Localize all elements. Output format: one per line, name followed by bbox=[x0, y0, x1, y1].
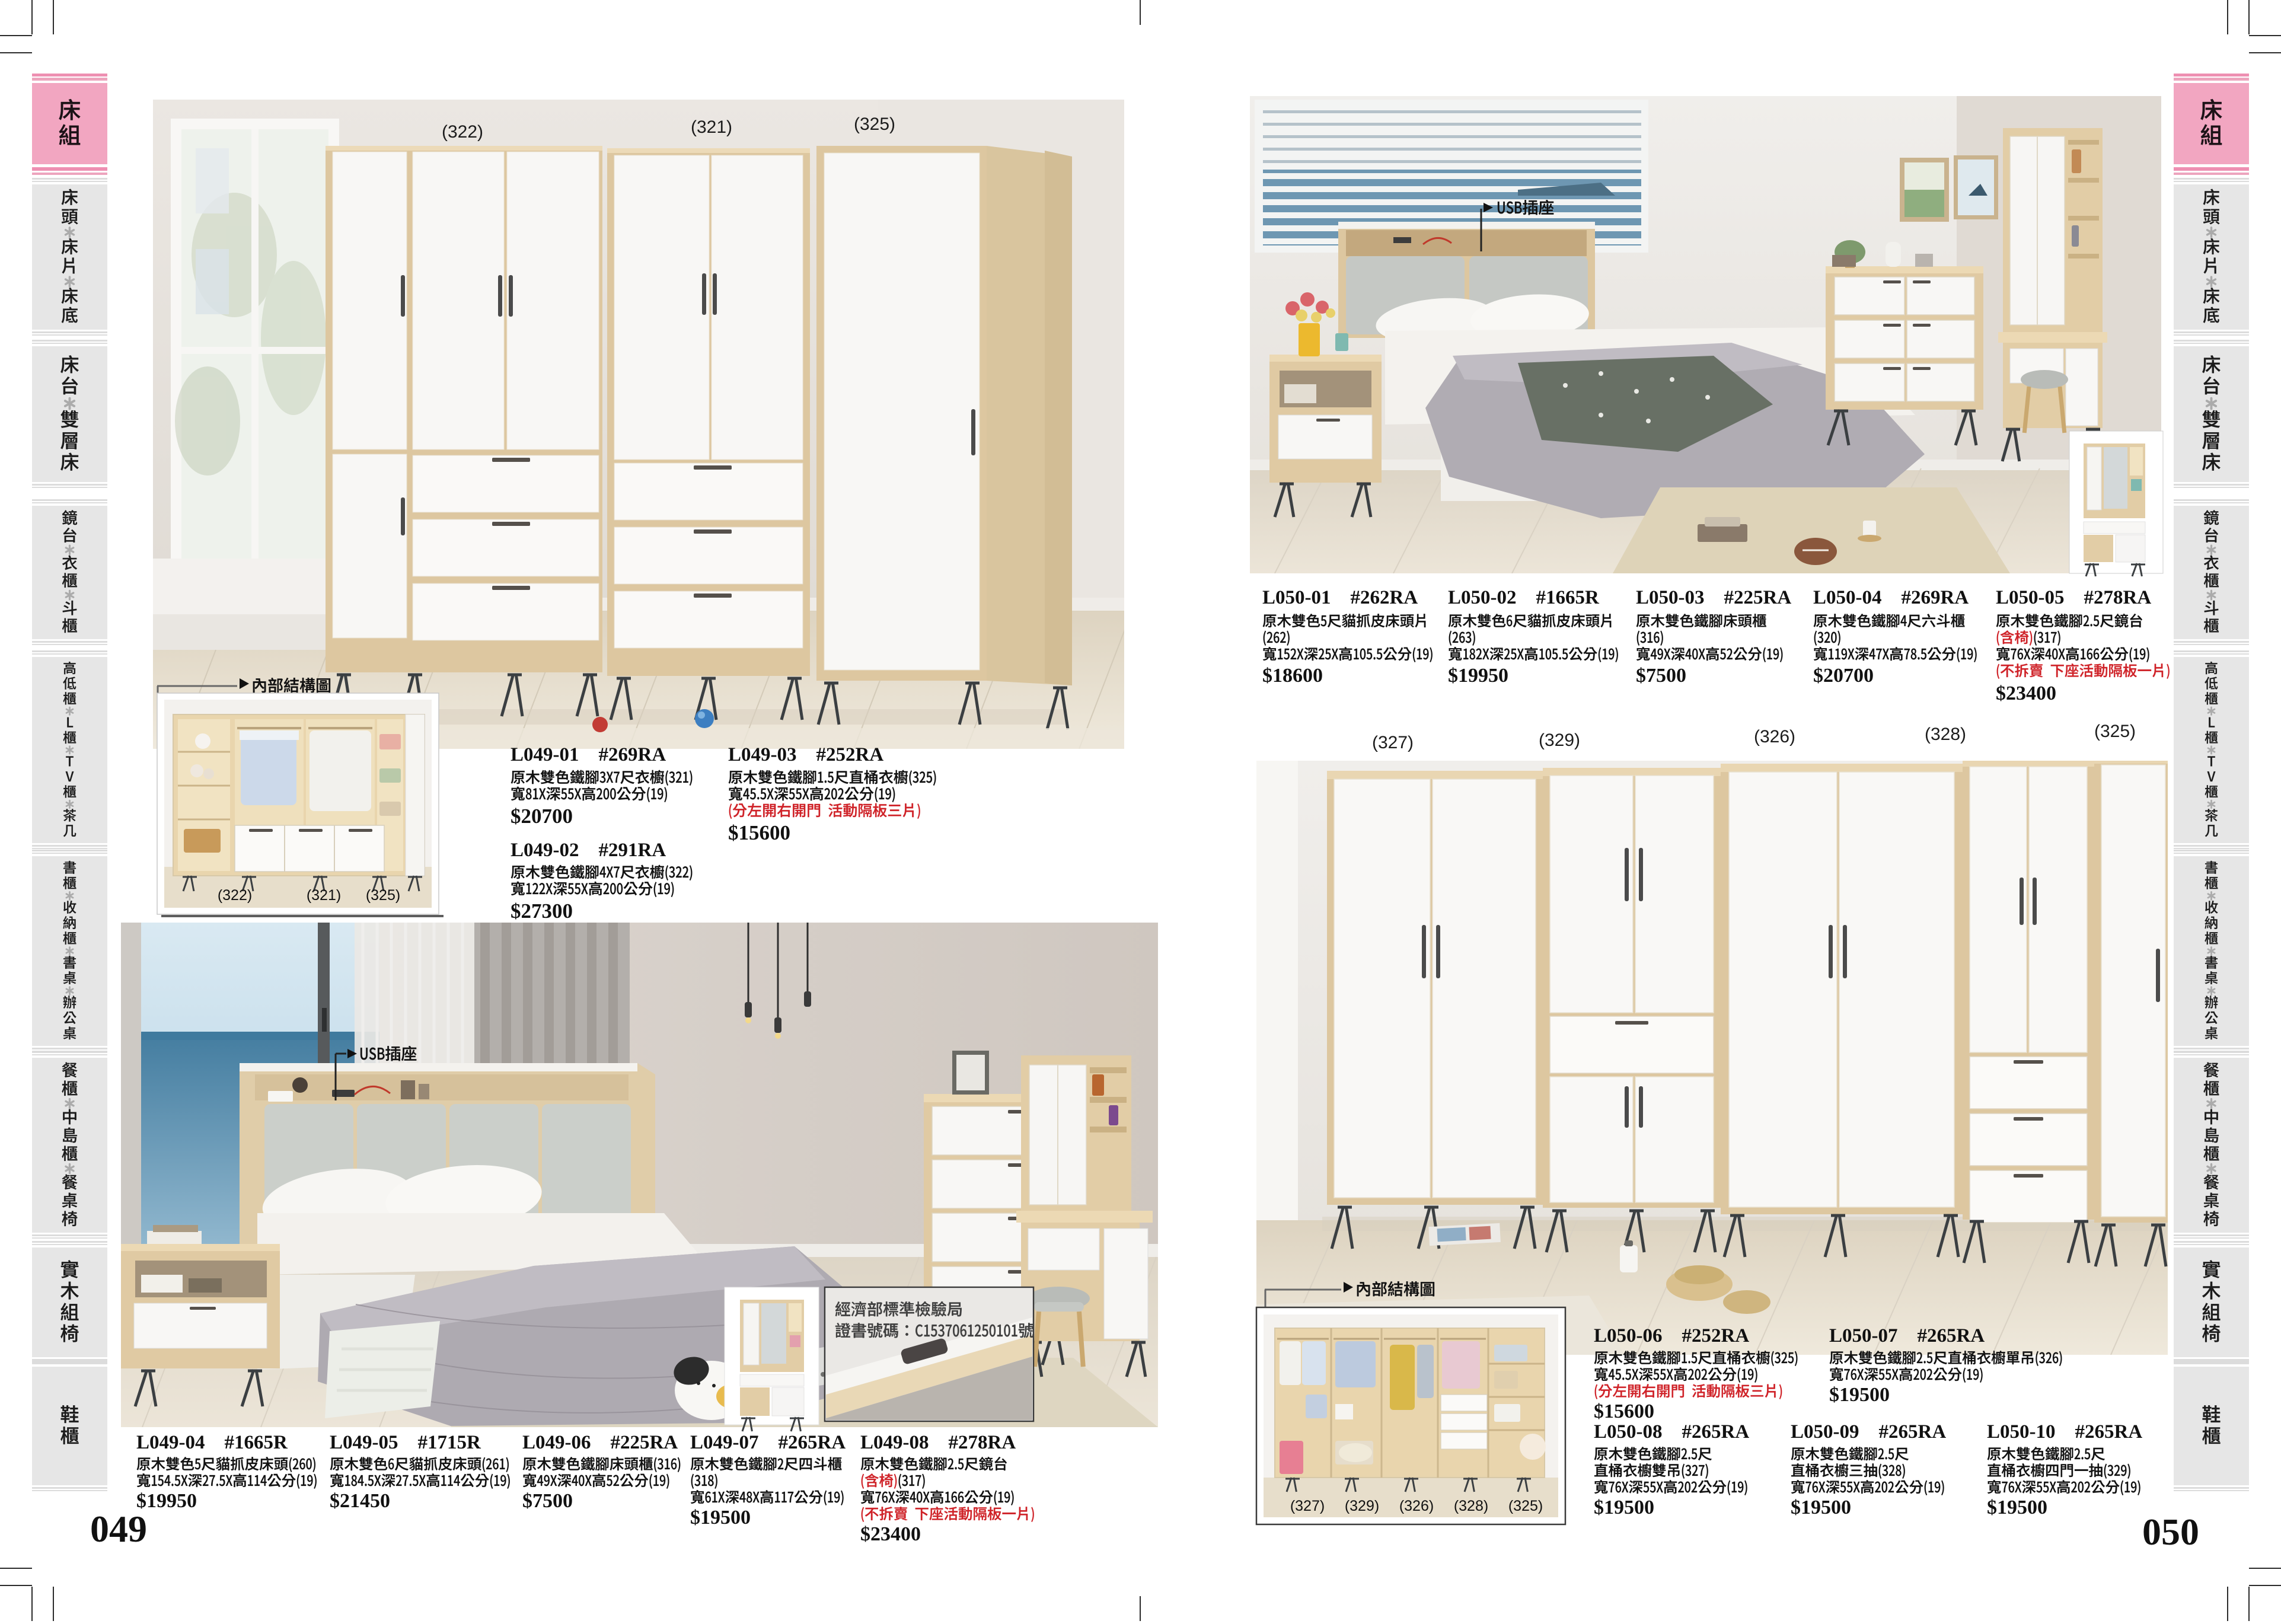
svg-text:L050-01 #262RA: L050-01 #262RA bbox=[1262, 587, 1418, 608]
svg-text:L049-01 #269RA: L049-01 #269RA bbox=[511, 744, 666, 765]
svg-text:L050-02 #1665R: L050-02 #1665R bbox=[1448, 587, 1600, 608]
svg-text:$7500: $7500 bbox=[522, 1490, 573, 1512]
svg-text:$19500: $19500 bbox=[1594, 1497, 1654, 1518]
svg-text:L050-07 #265RA: L050-07 #265RA bbox=[1829, 1325, 1985, 1347]
svg-text:$19500: $19500 bbox=[1791, 1497, 1851, 1518]
svg-text:(326): (326) bbox=[1754, 727, 1795, 746]
svg-text:$20700: $20700 bbox=[511, 805, 573, 828]
svg-text:(325): (325) bbox=[2094, 722, 2136, 741]
svg-text:L049-02 #291RA: L049-02 #291RA bbox=[511, 840, 666, 861]
svg-text:L049-03 #252RA: L049-03 #252RA bbox=[728, 744, 883, 765]
svg-text:L049-04 #1665R: L049-04 #1665R bbox=[136, 1432, 288, 1453]
svg-text:$19500: $19500 bbox=[1987, 1497, 2047, 1518]
svg-text:L050-05 #278RA: L050-05 #278RA bbox=[1996, 587, 2151, 608]
svg-text:$7500: $7500 bbox=[1636, 665, 1686, 687]
svg-text:L050-08 #265RA: L050-08 #265RA bbox=[1594, 1421, 1749, 1443]
svg-text:(321): (321) bbox=[691, 117, 732, 137]
svg-text:$15600: $15600 bbox=[1594, 1400, 1654, 1422]
svg-text:(328): (328) bbox=[1454, 1498, 1488, 1514]
svg-text:(325): (325) bbox=[854, 114, 895, 134]
svg-text:$19500: $19500 bbox=[1829, 1384, 1890, 1406]
svg-text:L050-03 #225RA: L050-03 #225RA bbox=[1636, 587, 1791, 608]
svg-text:L049-08 #278RA: L049-08 #278RA bbox=[860, 1432, 1016, 1453]
svg-text:L049-07 #265RA: L049-07 #265RA bbox=[690, 1432, 846, 1453]
svg-text:050: 050 bbox=[2142, 1511, 2199, 1553]
svg-text:(329): (329) bbox=[1345, 1498, 1379, 1514]
svg-text:L049-06 #225RA: L049-06 #225RA bbox=[522, 1432, 678, 1453]
svg-text:(328): (328) bbox=[1925, 725, 1966, 744]
svg-text:(326): (326) bbox=[1399, 1498, 1434, 1514]
svg-text:$21450: $21450 bbox=[330, 1490, 390, 1512]
svg-text:(321): (321) bbox=[307, 887, 341, 904]
svg-text:$15600: $15600 bbox=[728, 821, 790, 844]
svg-text:$23400: $23400 bbox=[860, 1523, 921, 1545]
svg-text:(322): (322) bbox=[442, 122, 483, 142]
svg-text:(325): (325) bbox=[1508, 1498, 1543, 1514]
svg-text:(325): (325) bbox=[366, 887, 400, 904]
svg-text:$20700: $20700 bbox=[1813, 665, 1874, 687]
svg-text:$18600: $18600 bbox=[1262, 665, 1323, 687]
svg-text:$19500: $19500 bbox=[690, 1507, 751, 1529]
svg-text:L050-10 #265RA: L050-10 #265RA bbox=[1987, 1421, 2142, 1443]
svg-text:(322): (322) bbox=[218, 887, 252, 904]
svg-text:L049-05 #1715R: L049-05 #1715R bbox=[330, 1432, 481, 1453]
svg-text:$27300: $27300 bbox=[511, 899, 573, 923]
svg-text:L050-09 #265RA: L050-09 #265RA bbox=[1791, 1421, 1946, 1443]
svg-text:(327): (327) bbox=[1290, 1498, 1325, 1514]
svg-text:L050-06 #252RA: L050-06 #252RA bbox=[1594, 1325, 1749, 1347]
svg-text:L050-04 #269RA: L050-04 #269RA bbox=[1813, 587, 1969, 608]
svg-text:(329): (329) bbox=[1539, 730, 1580, 750]
svg-text:049: 049 bbox=[90, 1508, 147, 1550]
svg-text:(327): (327) bbox=[1372, 733, 1414, 752]
svg-text:$23400: $23400 bbox=[1996, 682, 2056, 704]
svg-text:$19950: $19950 bbox=[1448, 665, 1508, 687]
